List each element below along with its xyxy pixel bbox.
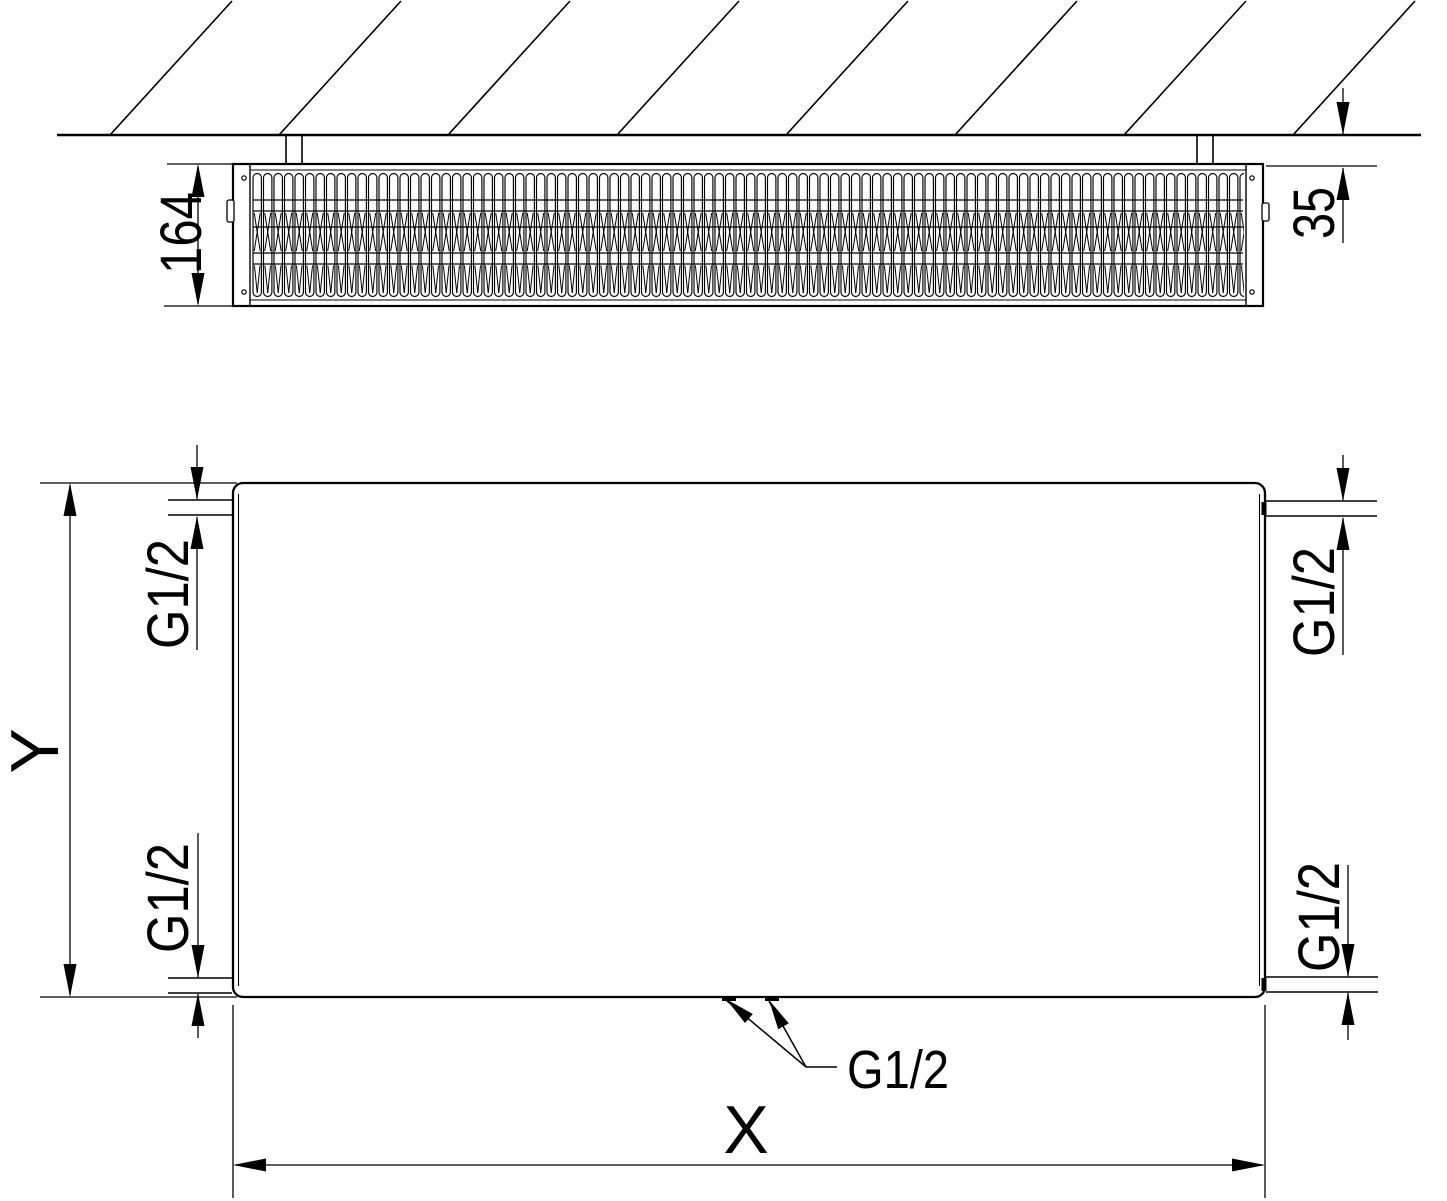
depth-dimension-label: 164 (149, 192, 214, 274)
wall-section (57, 1, 1421, 135)
connection-label-top-right: G1/2 (1282, 547, 1347, 657)
radiator-top-view (227, 164, 1269, 306)
arrow-right-icon (1232, 1159, 1265, 1172)
dimension-g12-top-right: G1/2 (1282, 455, 1350, 657)
left-clip-tab (227, 200, 234, 222)
connection-label-bottom-left: G1/2 (136, 843, 201, 953)
arrow-down-icon (1337, 102, 1350, 135)
arrow-up-icon (64, 483, 77, 516)
dimension-g12-top-left: G1/2 (136, 445, 204, 650)
wall-hatching (110, 1, 1415, 135)
dimension-g12-bottom-center: G1/2 (726, 999, 949, 1100)
arrow-left-icon (233, 1159, 266, 1172)
arrow-up-icon (1342, 992, 1355, 1025)
leader-arrow-icon (769, 1000, 789, 1029)
width-axis-label: X (723, 1092, 768, 1168)
radiator-front-view (168, 483, 1378, 1001)
front-panel-outline (233, 483, 1265, 997)
mounting-brackets (286, 136, 1213, 163)
connection-label-bottom-right: G1/2 (1287, 862, 1352, 972)
dimension-g12-bottom-left: G1/2 (136, 833, 205, 1038)
right-clip-tab (1262, 203, 1269, 221)
arrow-up-icon (1337, 517, 1350, 550)
arrow-down-icon (192, 273, 205, 306)
arrow-up-icon (192, 993, 205, 1026)
dimension-height-Y: Y (0, 483, 237, 997)
connection-label-top-left: G1/2 (136, 539, 201, 649)
dimension-width-X: X (233, 1005, 1265, 1198)
drawing-canvas: 164 35 (0, 0, 1447, 1201)
wall-distance-label: 35 (1282, 187, 1347, 239)
radiator-technical-drawing: 164 35 (0, 0, 1447, 1201)
convector-fins (252, 172, 1244, 298)
dimension-g12-bottom-right: G1/2 (1287, 862, 1355, 1040)
height-axis-label: Y (0, 728, 73, 773)
dimension-wall-gap-35: 35 (1266, 88, 1377, 243)
arrow-down-icon (1337, 468, 1350, 501)
connection-label-bottom-center: G1/2 (847, 1040, 949, 1100)
arrow-down-icon (64, 964, 77, 997)
